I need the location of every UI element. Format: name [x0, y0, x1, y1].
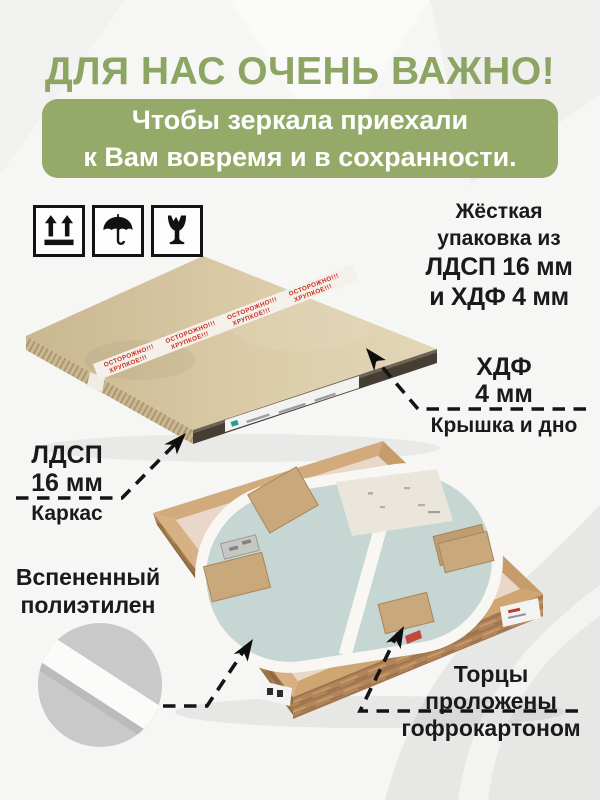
arrow-edges: [386, 622, 411, 650]
rigid-line-1: Жёсткая: [408, 198, 590, 225]
annotation-ldsp-caption: Каркас: [8, 502, 126, 526]
keep-dry-icon: [92, 205, 144, 257]
arrow-foam: [234, 634, 260, 662]
edges-line-2: проложены: [392, 688, 590, 715]
foam-line-2: полиэтилен: [4, 591, 172, 619]
banner-line-2: к Вам вовремя и в сохранности.: [83, 139, 516, 176]
rigid-line-2: упаковка из: [408, 225, 590, 252]
page-title: ДЛЯ НАС ОЧЕНЬ ВАЖНО!: [0, 50, 600, 94]
foam-line-1: Вспененный: [4, 563, 172, 591]
edges-line-3: гофрокартоном: [392, 715, 590, 742]
dashed-connector-foam: [163, 646, 247, 706]
annotation-edges: Торцы проложены гофрокартоном: [392, 661, 590, 742]
annotation-rigid-packaging: Жёсткая упаковка из ЛДСП 16 мм и ХДФ 4 м…: [408, 198, 590, 312]
rigid-line-4: и ХДФ 4 мм: [408, 282, 590, 312]
hdf-material: ХДФ: [420, 354, 588, 381]
fragile-icon: [151, 205, 203, 257]
hdf-thickness: 4 мм: [420, 381, 588, 408]
annotation-hdf: ХДФ 4 мм: [420, 354, 588, 408]
edges-line-1: Торцы: [392, 661, 590, 688]
ldsp-material: ЛДСП: [8, 441, 126, 469]
banner-line-1: Чтобы зеркала приехали: [132, 102, 468, 139]
annotation-hdf-caption: Крышка и дно: [420, 414, 588, 438]
annotation-foam: Вспененный полиэтилен: [4, 563, 172, 619]
handling-icons: [33, 205, 203, 257]
arrow-hdf: [359, 343, 386, 371]
this-way-up-icon: [33, 205, 85, 257]
ldsp-thickness: 16 мм: [8, 469, 126, 497]
promo-banner: Чтобы зеркала приехали к Вам вовремя и в…: [42, 99, 558, 178]
rigid-line-3: ЛДСП 16 мм: [408, 252, 590, 282]
annotation-ldsp: ЛДСП 16 мм: [8, 441, 126, 497]
